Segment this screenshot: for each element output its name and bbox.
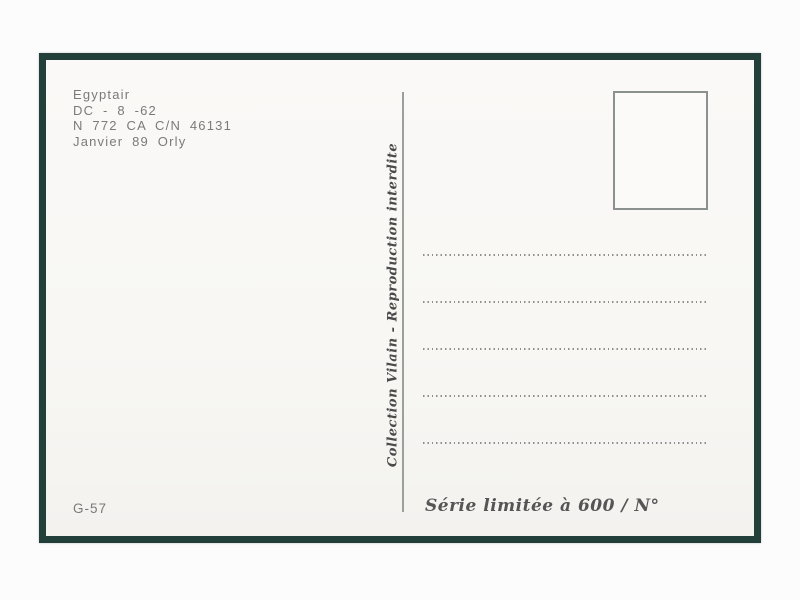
address-line bbox=[423, 254, 707, 256]
photo-caption: Egyptair DC - 8 -62 N 772 CA C/N 46131 J… bbox=[73, 87, 232, 149]
publisher-credit: Collection Vilain - Reproduction interdi… bbox=[386, 143, 401, 467]
address-line bbox=[423, 442, 707, 444]
limited-edition-note: Série limitée à 600 / N° bbox=[425, 496, 660, 516]
center-divider-line bbox=[402, 92, 404, 512]
catalog-number: G-57 bbox=[73, 501, 107, 516]
address-line bbox=[423, 348, 707, 350]
caption-airline: Egyptair bbox=[73, 87, 232, 103]
caption-date-location: Janvier 89 Orly bbox=[73, 134, 232, 150]
postcard-scan: Egyptair DC - 8 -62 N 772 CA C/N 46131 J… bbox=[0, 0, 800, 600]
caption-registration: N 772 CA C/N 46131 bbox=[73, 118, 232, 134]
postcard-back: Egyptair DC - 8 -62 N 772 CA C/N 46131 J… bbox=[46, 60, 754, 536]
postcard-dark-border: Egyptair DC - 8 -62 N 772 CA C/N 46131 J… bbox=[39, 53, 761, 543]
address-line bbox=[423, 301, 707, 303]
caption-aircraft-type: DC - 8 -62 bbox=[73, 103, 232, 119]
stamp-box bbox=[613, 91, 708, 210]
address-line bbox=[423, 395, 707, 397]
